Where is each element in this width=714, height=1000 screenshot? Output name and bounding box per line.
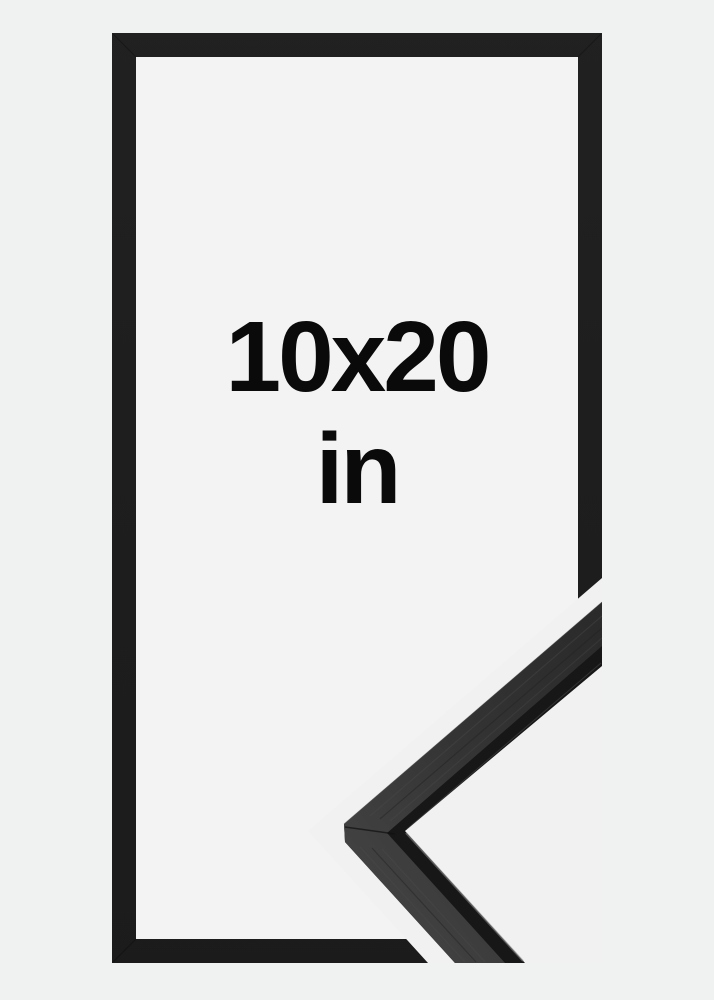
product-photo-black-frame: 10x20 in: [0, 0, 714, 1000]
size-label-unit: in: [112, 413, 602, 525]
size-label-dimensions: 10x20: [112, 301, 602, 413]
size-label: 10x20 in: [112, 301, 602, 525]
